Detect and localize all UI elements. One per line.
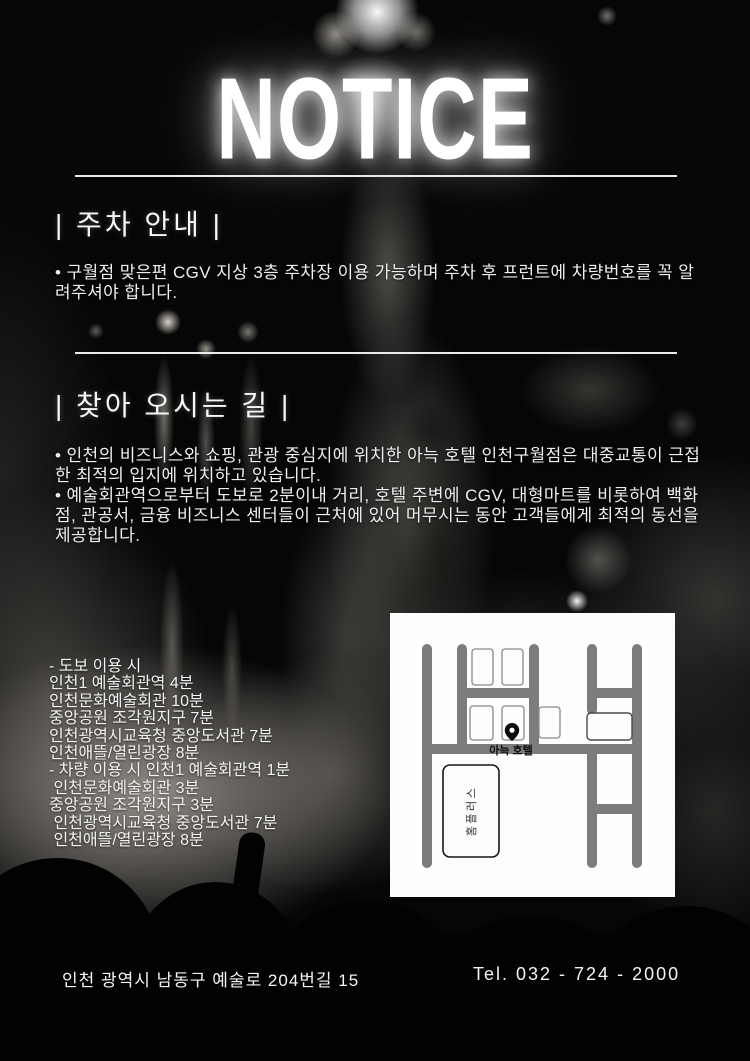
hotel-map-label: 아늑 호텔	[489, 743, 533, 757]
route-line: 중앙공원 조각원지구 7분	[49, 710, 389, 727]
route-line: 인천애뜰/열린광장 8분	[49, 832, 389, 849]
route-line: 인천문화예술회관 3분	[49, 780, 389, 797]
route-list: - 도보 이용 시 인천1 예술회관역 4분 인천문화예술회관 10분 중앙공원…	[49, 658, 389, 849]
directions-bullet: • 인천의 비즈니스와 쇼핑, 관광 중심지에 위치한 아늑 호텔 인천구월점은…	[55, 446, 705, 486]
map-graphic: 아늑 호텔 홈플러스	[390, 613, 675, 897]
divider	[75, 352, 677, 354]
notice-title: NOTICE	[49, 62, 702, 178]
parking-section-heading: | 주차 안내 |	[55, 203, 223, 243]
divider	[75, 175, 677, 177]
notice-poster: NOTICE | 주차 안내 | • 구월점 맞은편 CGV 지상 3층 주차장…	[0, 0, 750, 1061]
homeplus-map-label: 홈플러스	[464, 786, 478, 836]
route-line: 인천광역시교육청 중앙도서관 7분	[49, 728, 389, 745]
route-line: - 도보 이용 시	[49, 658, 389, 675]
route-line: 중앙공원 조각원지구 3분	[49, 797, 389, 814]
route-line: - 차량 이용 시 인천1 예술회관역 1분	[49, 762, 389, 779]
location-map: 아늑 호텔 홈플러스	[390, 613, 675, 897]
directions-section-heading: | 찾아 오시는 길 |	[55, 384, 291, 424]
parking-section-body: • 구월점 맞은편 CGV 지상 3층 주차장 이용 가능하며 주차 후 프런트…	[55, 263, 703, 303]
directions-bullet: • 예술회관역으로부터 도보로 2분이내 거리, 호텔 주변에 CGV, 대형마…	[55, 486, 705, 546]
footer-address: 인천 광역시 남동구 예술로 204번길 15	[62, 966, 359, 991]
directions-section-body: • 인천의 비즈니스와 쇼핑, 관광 중심지에 위치한 아늑 호텔 인천구월점은…	[55, 446, 705, 546]
route-line: 인천애뜰/열린광장 8분	[49, 745, 389, 762]
route-line: 인천광역시교육청 중앙도서관 7분	[49, 815, 389, 832]
route-line: 인천1 예술회관역 4분	[49, 675, 389, 692]
route-line: 인천문화예술회관 10분	[49, 693, 389, 710]
footer-tel: Tel. 032 - 724 - 2000	[473, 964, 680, 985]
